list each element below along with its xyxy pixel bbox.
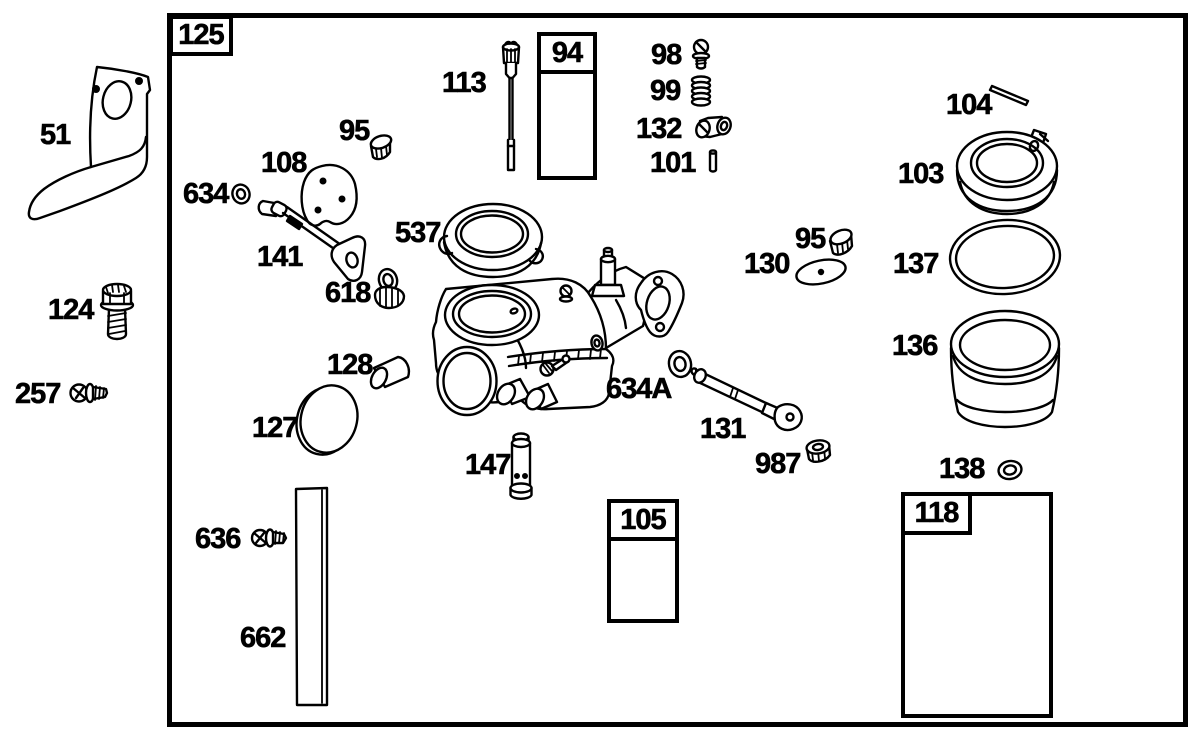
metering-needle-113-drawing: [503, 42, 519, 170]
group-box-118-label: 118: [915, 499, 959, 528]
washer-634-drawing: [230, 182, 252, 205]
part-label-51: 51: [40, 121, 70, 150]
pin-101-drawing: [710, 150, 716, 171]
parts-diagram-page: 125 94 105 118 5112425763410895141537618…: [0, 0, 1200, 739]
group-box-105: 105: [607, 499, 679, 623]
oval-disc-127-drawing: [289, 379, 365, 461]
oval-disc-130-drawing: [794, 256, 848, 289]
part-label-124: 124: [48, 296, 93, 325]
part-label-127: 127: [252, 414, 297, 443]
part-label-128: 128: [327, 351, 372, 380]
part-label-108: 108: [261, 149, 306, 178]
part-label-131: 131: [700, 415, 745, 444]
ring-gasket-537-drawing: [439, 204, 543, 277]
o-ring-138-drawing: [997, 459, 1023, 481]
tube-128-drawing: [368, 357, 409, 391]
part-label-130: 130: [744, 250, 789, 279]
part-label-101: 101: [650, 149, 695, 178]
part-label-95: 95: [339, 117, 369, 146]
flange-bolt-124-drawing: [101, 284, 133, 339]
part-label-138: 138: [939, 455, 984, 484]
group-box-94: 94: [537, 32, 597, 180]
slotted-screw-98-drawing: [693, 40, 709, 69]
plate-108-drawing: [302, 165, 357, 226]
seal-cup-987-drawing: [806, 439, 831, 462]
part-label-662: 662: [240, 624, 285, 653]
group-box-94-header: 94: [541, 36, 593, 74]
group-box-118: 118: [901, 492, 1053, 718]
part-label-634a: 634A: [606, 375, 671, 404]
frame-tag-125: 125: [169, 15, 233, 56]
part-label-257: 257: [15, 380, 60, 409]
group-box-105-header: 105: [611, 503, 675, 541]
part-label-104: 104: [946, 91, 991, 120]
part-label-137: 137: [893, 250, 938, 279]
part-label-103: 103: [898, 160, 943, 189]
part-label-99: 99: [650, 77, 680, 106]
bushing-132-drawing: [694, 116, 733, 139]
float-ring-103-drawing: [957, 130, 1057, 214]
o-ring-137-drawing: [948, 217, 1062, 297]
part-label-636: 636: [195, 525, 240, 554]
part-label-634: 634: [183, 180, 228, 209]
part-label-95: 95: [795, 225, 825, 254]
group-box-118-header: 118: [905, 496, 972, 535]
spring-99-drawing: [692, 77, 710, 106]
fuel-bowl-136-drawing: [951, 311, 1059, 427]
shaft-seal-618-drawing: [375, 267, 404, 308]
part-label-136: 136: [892, 332, 937, 361]
group-box-105-label: 105: [620, 506, 665, 535]
hex-screw-636-drawing: [252, 530, 286, 547]
hinge-pin-104-drawing: [990, 86, 1028, 105]
part-label-537: 537: [395, 219, 440, 248]
strip-662-drawing: [296, 488, 327, 705]
part-label-147: 147: [465, 451, 510, 480]
group-box-94-label: 94: [552, 39, 582, 68]
part-label-618: 618: [325, 279, 370, 308]
welch-plug-95-left-drawing: [369, 133, 393, 159]
part-label-987: 987: [755, 450, 800, 479]
part-label-113: 113: [442, 69, 486, 98]
standpipe-147-drawing: [511, 434, 532, 499]
frame-label: 125: [178, 21, 223, 50]
hex-screw-257-drawing: [71, 384, 108, 402]
part-label-132: 132: [636, 115, 681, 144]
part-label-141: 141: [257, 243, 302, 272]
welch-plug-95-right-drawing: [828, 227, 853, 255]
part-label-98: 98: [651, 41, 681, 70]
